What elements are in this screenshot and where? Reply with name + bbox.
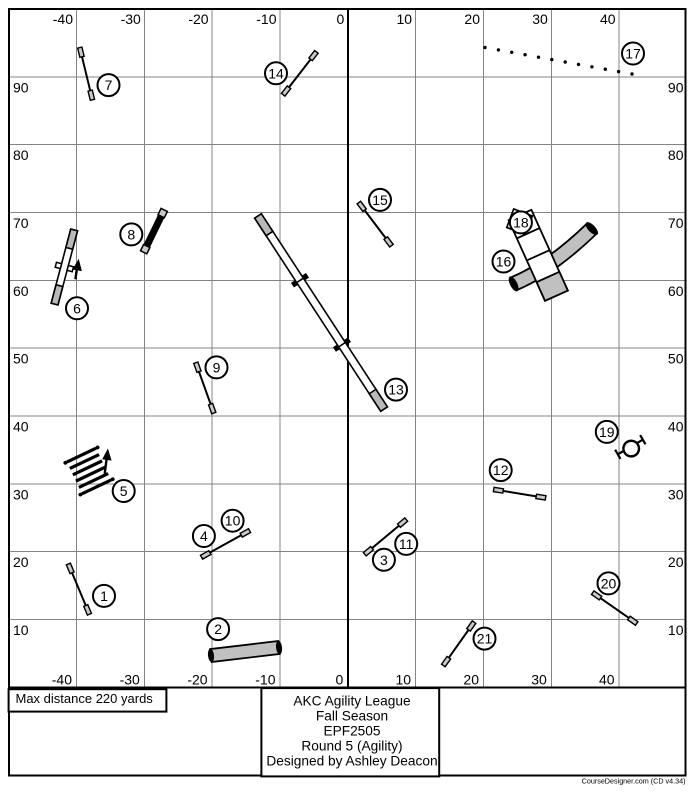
svg-text:10: 10 [396, 672, 412, 688]
svg-text:20: 20 [464, 11, 480, 27]
svg-text:20: 20 [13, 554, 29, 570]
svg-text:50: 50 [13, 351, 29, 367]
svg-text:1: 1 [100, 588, 108, 604]
svg-text:60: 60 [668, 283, 684, 299]
svg-text:18: 18 [513, 214, 529, 230]
svg-text:13: 13 [388, 382, 404, 398]
svg-text:11: 11 [399, 536, 414, 552]
svg-text:3: 3 [380, 552, 388, 568]
svg-text:70: 70 [13, 215, 29, 231]
svg-text:-40: -40 [52, 672, 72, 688]
svg-text:40: 40 [600, 11, 616, 27]
svg-text:Designed by Ashley Deacon: Designed by Ashley Deacon [266, 754, 437, 769]
svg-text:-40: -40 [53, 11, 73, 27]
svg-text:CourseDesigner.com (CD v4.34): CourseDesigner.com (CD v4.34) [582, 776, 686, 785]
svg-text:70: 70 [668, 215, 684, 231]
svg-text:-20: -20 [187, 672, 207, 688]
svg-text:40: 40 [668, 419, 684, 435]
svg-text:Round 5 (Agility): Round 5 (Agility) [301, 739, 402, 754]
svg-text:20: 20 [601, 575, 617, 591]
svg-text:0: 0 [336, 672, 344, 688]
svg-text:6: 6 [73, 300, 81, 316]
svg-text:15: 15 [372, 192, 388, 208]
svg-text:Fall Season: Fall Season [316, 709, 388, 724]
svg-text:EPF2505: EPF2505 [323, 724, 380, 739]
svg-text:30: 30 [531, 672, 547, 688]
svg-text:17: 17 [625, 46, 641, 62]
svg-text:50: 50 [668, 351, 684, 367]
svg-text:30: 30 [532, 11, 548, 27]
svg-text:10: 10 [225, 513, 241, 529]
svg-text:40: 40 [13, 419, 29, 435]
svg-text:7: 7 [105, 77, 113, 93]
svg-text:-10: -10 [255, 672, 275, 688]
svg-text:9: 9 [213, 359, 221, 375]
svg-text:2: 2 [214, 621, 222, 637]
svg-text:80: 80 [668, 147, 684, 163]
svg-text:30: 30 [668, 486, 684, 502]
svg-text:-30: -30 [121, 11, 141, 27]
svg-text:AKC Agility League: AKC Agility League [293, 694, 410, 709]
svg-text:8: 8 [127, 226, 135, 242]
svg-text:80: 80 [13, 147, 29, 163]
svg-text:5: 5 [120, 483, 128, 499]
svg-text:20: 20 [668, 554, 684, 570]
svg-text:16: 16 [496, 254, 512, 270]
svg-text:-10: -10 [256, 11, 276, 27]
svg-text:30: 30 [13, 486, 29, 502]
svg-text:-30: -30 [120, 672, 140, 688]
svg-text:Max distance 220 yards: Max distance 220 yards [16, 691, 154, 706]
svg-text:21: 21 [477, 631, 493, 647]
svg-text:4: 4 [200, 528, 208, 544]
svg-text:19: 19 [599, 424, 615, 440]
svg-text:10: 10 [13, 622, 29, 638]
svg-text:14: 14 [268, 65, 284, 81]
svg-text:90: 90 [13, 79, 29, 95]
svg-text:10: 10 [397, 11, 413, 27]
svg-text:60: 60 [13, 283, 29, 299]
svg-text:10: 10 [668, 622, 684, 638]
svg-text:20: 20 [463, 672, 479, 688]
svg-text:40: 40 [599, 672, 615, 688]
svg-text:90: 90 [668, 79, 684, 95]
svg-text:-20: -20 [188, 11, 208, 27]
svg-text:0: 0 [337, 11, 345, 27]
svg-text:12: 12 [493, 462, 509, 478]
